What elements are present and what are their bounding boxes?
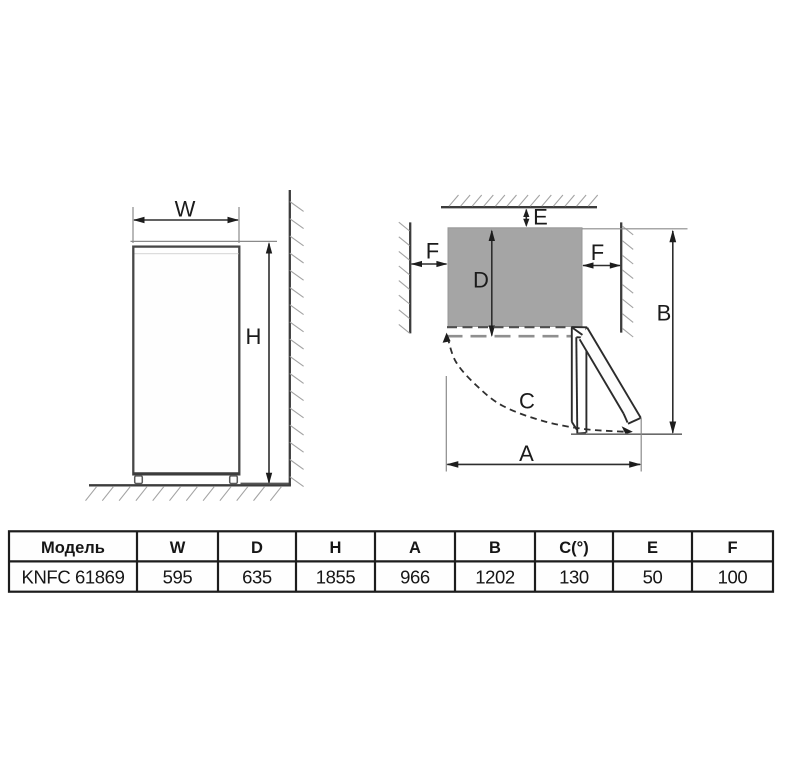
svg-text:E: E — [533, 205, 548, 230]
svg-text:D: D — [251, 539, 263, 557]
svg-text:A: A — [409, 539, 421, 557]
svg-text:E: E — [647, 539, 658, 557]
svg-text:KNFC 61869: KNFC 61869 — [22, 567, 125, 588]
svg-text:H: H — [330, 539, 342, 557]
svg-text:H: H — [246, 324, 262, 349]
svg-text:635: 635 — [242, 567, 272, 588]
svg-text:A: A — [519, 441, 534, 466]
svg-text:C: C — [519, 389, 535, 414]
svg-text:100: 100 — [718, 567, 748, 588]
svg-text:B: B — [489, 539, 501, 557]
svg-text:F: F — [727, 539, 737, 557]
svg-text:1855: 1855 — [316, 567, 356, 588]
svg-text:F: F — [591, 240, 604, 265]
svg-text:966: 966 — [400, 567, 430, 588]
svg-text:F: F — [426, 239, 439, 264]
svg-text:50: 50 — [643, 567, 663, 588]
svg-text:B: B — [657, 301, 672, 326]
svg-text:D: D — [473, 268, 489, 293]
svg-text:130: 130 — [559, 567, 589, 588]
svg-text:Модель: Модель — [41, 539, 105, 557]
svg-text:1202: 1202 — [475, 567, 515, 588]
svg-text:W: W — [175, 197, 196, 222]
svg-text:W: W — [170, 539, 186, 557]
svg-text:595: 595 — [163, 567, 193, 588]
svg-text:C(°): C(°) — [559, 539, 589, 557]
